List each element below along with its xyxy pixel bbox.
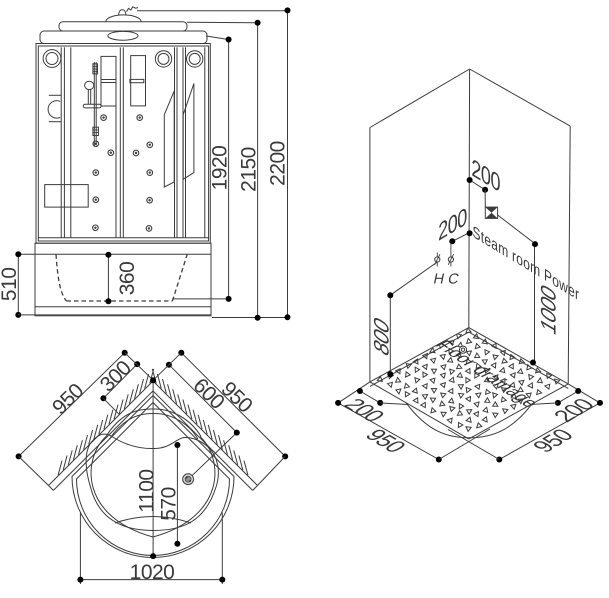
svg-text:2200: 2200 bbox=[267, 141, 290, 186]
svg-text:1020: 1020 bbox=[130, 561, 175, 584]
svg-text:510: 510 bbox=[0, 268, 21, 302]
svg-text:2150: 2150 bbox=[238, 147, 261, 192]
svg-text:1920: 1920 bbox=[209, 146, 232, 191]
svg-text:360: 360 bbox=[116, 262, 139, 296]
svg-text:570: 570 bbox=[158, 487, 181, 521]
svg-text:1100: 1100 bbox=[136, 469, 159, 512]
